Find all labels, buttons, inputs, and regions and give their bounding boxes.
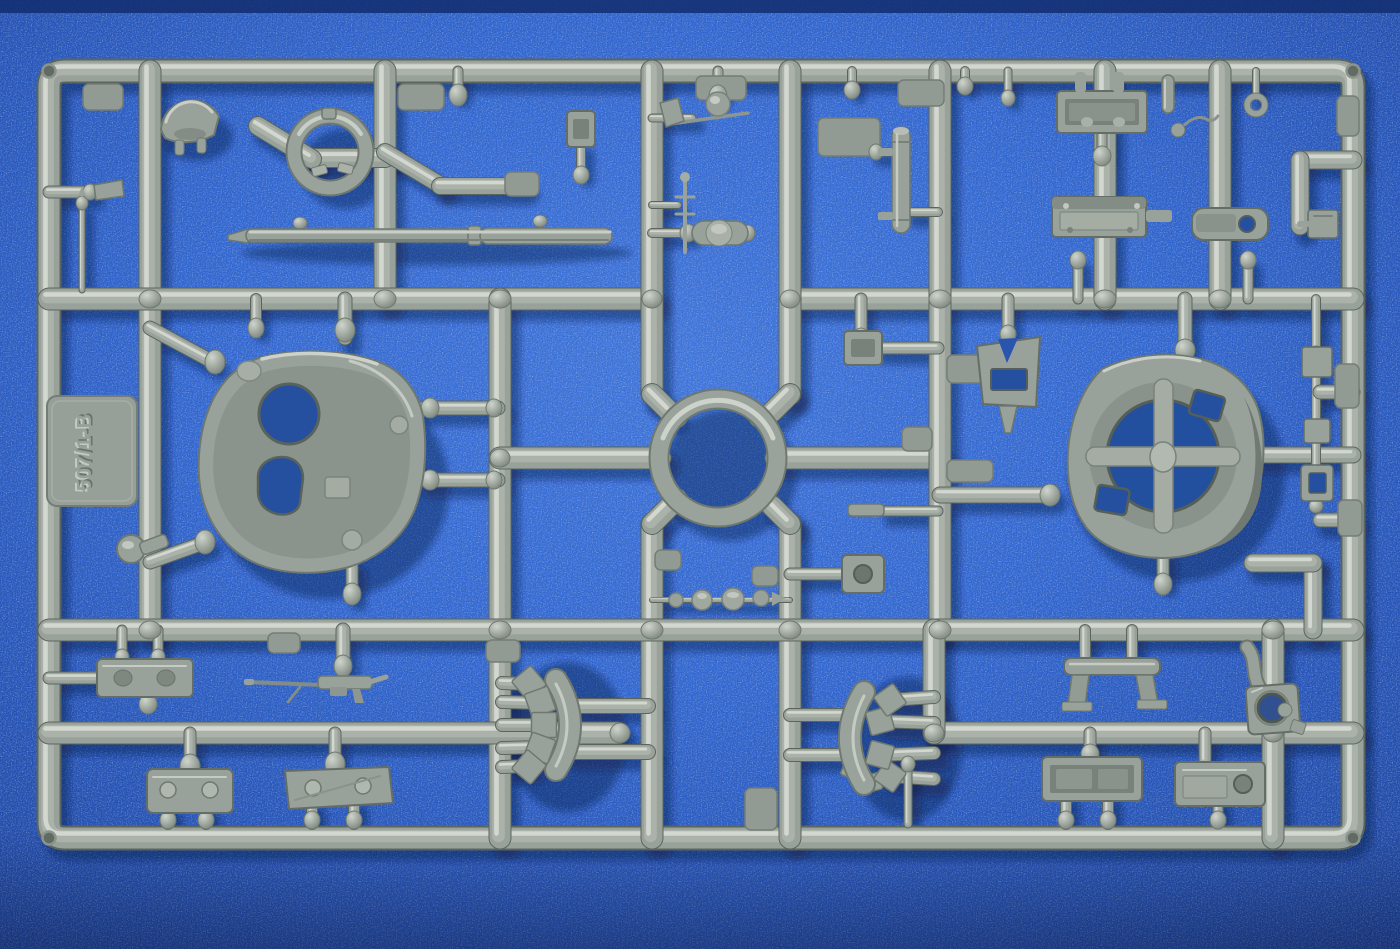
top-teardrop <box>706 92 730 116</box>
hatch-plate-a <box>147 769 233 813</box>
sprue-photo: 507/1-B507/1-B507/1-B <box>0 0 1400 949</box>
sprue-svg: 507/1-B507/1-B507/1-B <box>0 0 1400 949</box>
turret-base-right <box>1068 355 1264 558</box>
bin-bottom-a <box>1042 757 1142 801</box>
mold-number-tab: 507/1-B507/1-B507/1-B <box>47 396 137 506</box>
small-box-a <box>844 331 882 365</box>
engine-plate <box>97 659 193 697</box>
pin-part <box>1162 75 1174 113</box>
curved-bracket <box>1192 208 1268 240</box>
small-block <box>567 111 595 147</box>
mold-number-text: 507/1-B <box>74 413 96 491</box>
gun-barrel <box>228 226 612 245</box>
hatch-plate-b <box>285 767 393 809</box>
capsule-part <box>692 220 748 246</box>
turret-shell-left <box>199 351 425 572</box>
bin-bottom-b <box>1175 762 1265 806</box>
